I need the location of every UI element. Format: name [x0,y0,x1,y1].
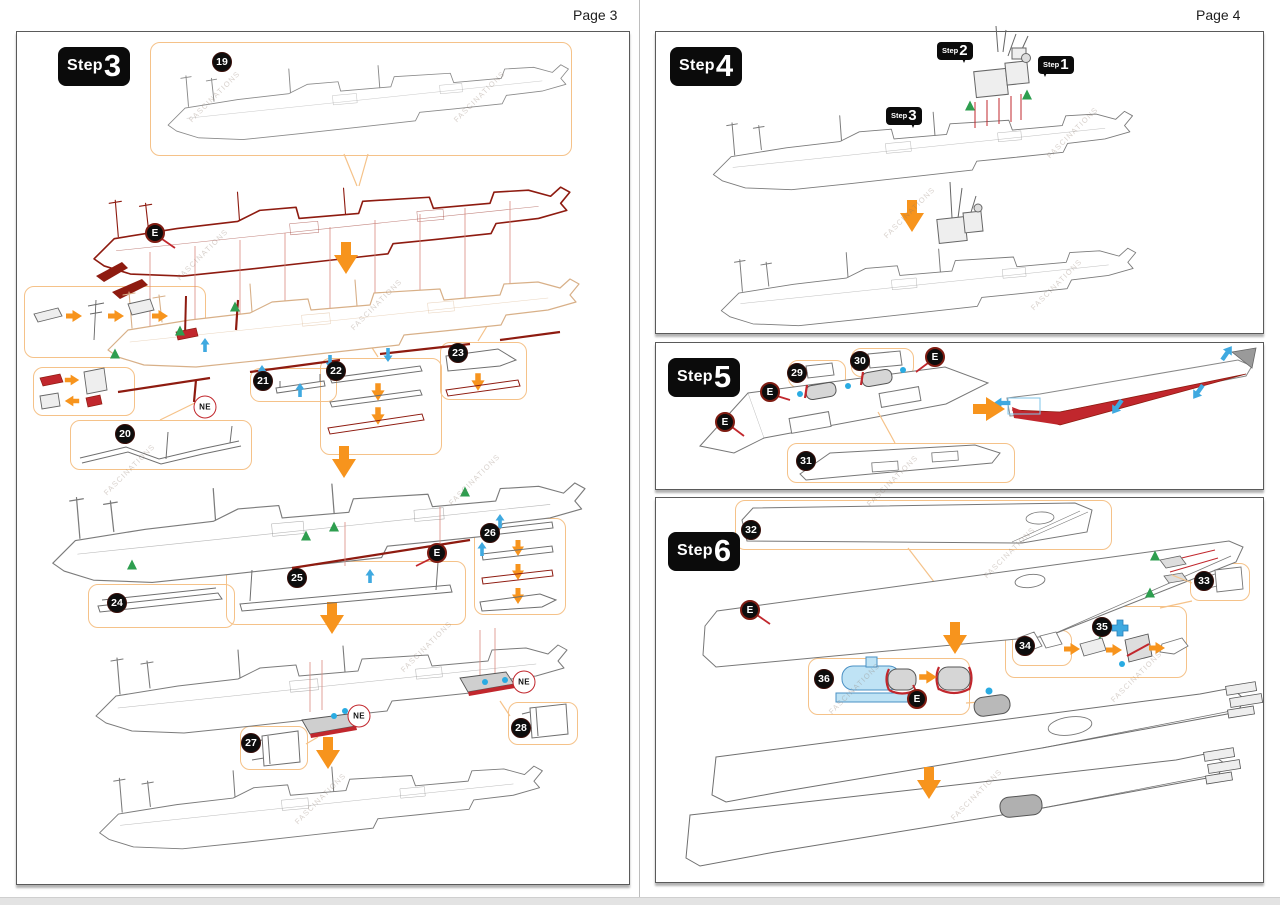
step-3-number: 3 [104,50,121,81]
callout-part-32 [735,500,1112,550]
page-3-header: Page 3 [573,7,617,23]
part-badge-30: 30 [850,351,870,371]
part-badge-21: 21 [253,371,273,391]
sub-step-1-badge: Step1 [1038,56,1074,74]
e-marker-step5-mid: E [760,382,780,402]
part-badge-24: 24 [107,593,127,613]
sub-step-2-number: 2 [959,43,967,58]
e-marker-step6-pod: E [907,689,927,709]
part-badge-36: 36 [814,669,834,689]
step-5-badge: Step5 [668,358,740,397]
step-4-word: Step [679,57,715,75]
part-badge-33: 33 [1194,571,1214,591]
part-badge-35: 35 [1092,617,1112,637]
page-4-header: Page 4 [1196,7,1240,23]
part-badge-34: 34 [1015,636,1035,656]
part-badge-29: 29 [787,363,807,383]
sub-step-2-badge: Step2 [937,42,973,60]
e-marker-step6-panel: E [740,600,760,620]
part-badge-20: 20 [115,424,135,444]
step-6-badge: Step6 [668,532,740,571]
callout-part-20 [70,420,252,470]
ne-marker-part-27: NE [348,705,371,728]
part-badge-32: 32 [741,520,761,540]
part-badge-26: 26 [480,523,500,543]
sub-step-2-word: Step [942,46,958,55]
e-marker-deck-d: E [427,543,447,563]
sub-step-1-word: Step [1043,60,1059,69]
part-badge-22: 22 [326,361,346,381]
e-marker-step5-top: E [925,347,945,367]
sub-step-3-word: Step [891,111,907,120]
sub-step-1-number: 1 [1060,57,1068,72]
step-4-frame [655,31,1264,334]
callout-mast-fold [24,286,206,358]
part-badge-23: 23 [448,343,468,363]
step-6-word: Step [677,542,713,560]
step-5-number: 5 [714,361,731,392]
step-3-badge: Step3 [58,47,130,86]
callout-part-25 [226,561,466,625]
part-badge-28: 28 [511,718,531,738]
part-badge-31: 31 [796,451,816,471]
ne-marker-part-28: NE [513,671,536,694]
e-marker-step5-low: E [715,412,735,432]
page-divider [639,0,640,897]
sub-step-3-badge: Step3 [886,107,922,125]
step-6-number: 6 [714,535,731,566]
window-bottom-bar [0,897,1280,905]
step-4-badge: Step4 [670,47,742,86]
e-marker-deck-b: E [145,223,165,243]
part-badge-27: 27 [241,733,261,753]
part-badge-19: 19 [212,52,232,72]
part-badge-25: 25 [287,568,307,588]
ne-marker-deck-c: NE [194,396,217,419]
step-4-number: 4 [716,50,733,81]
manual-spread: Page 3 Page 4 [0,0,1280,905]
step-3-word: Step [67,57,103,75]
callout-bracket-fold [33,367,135,416]
step-5-word: Step [677,368,713,386]
sub-step-3-number: 3 [908,108,916,123]
